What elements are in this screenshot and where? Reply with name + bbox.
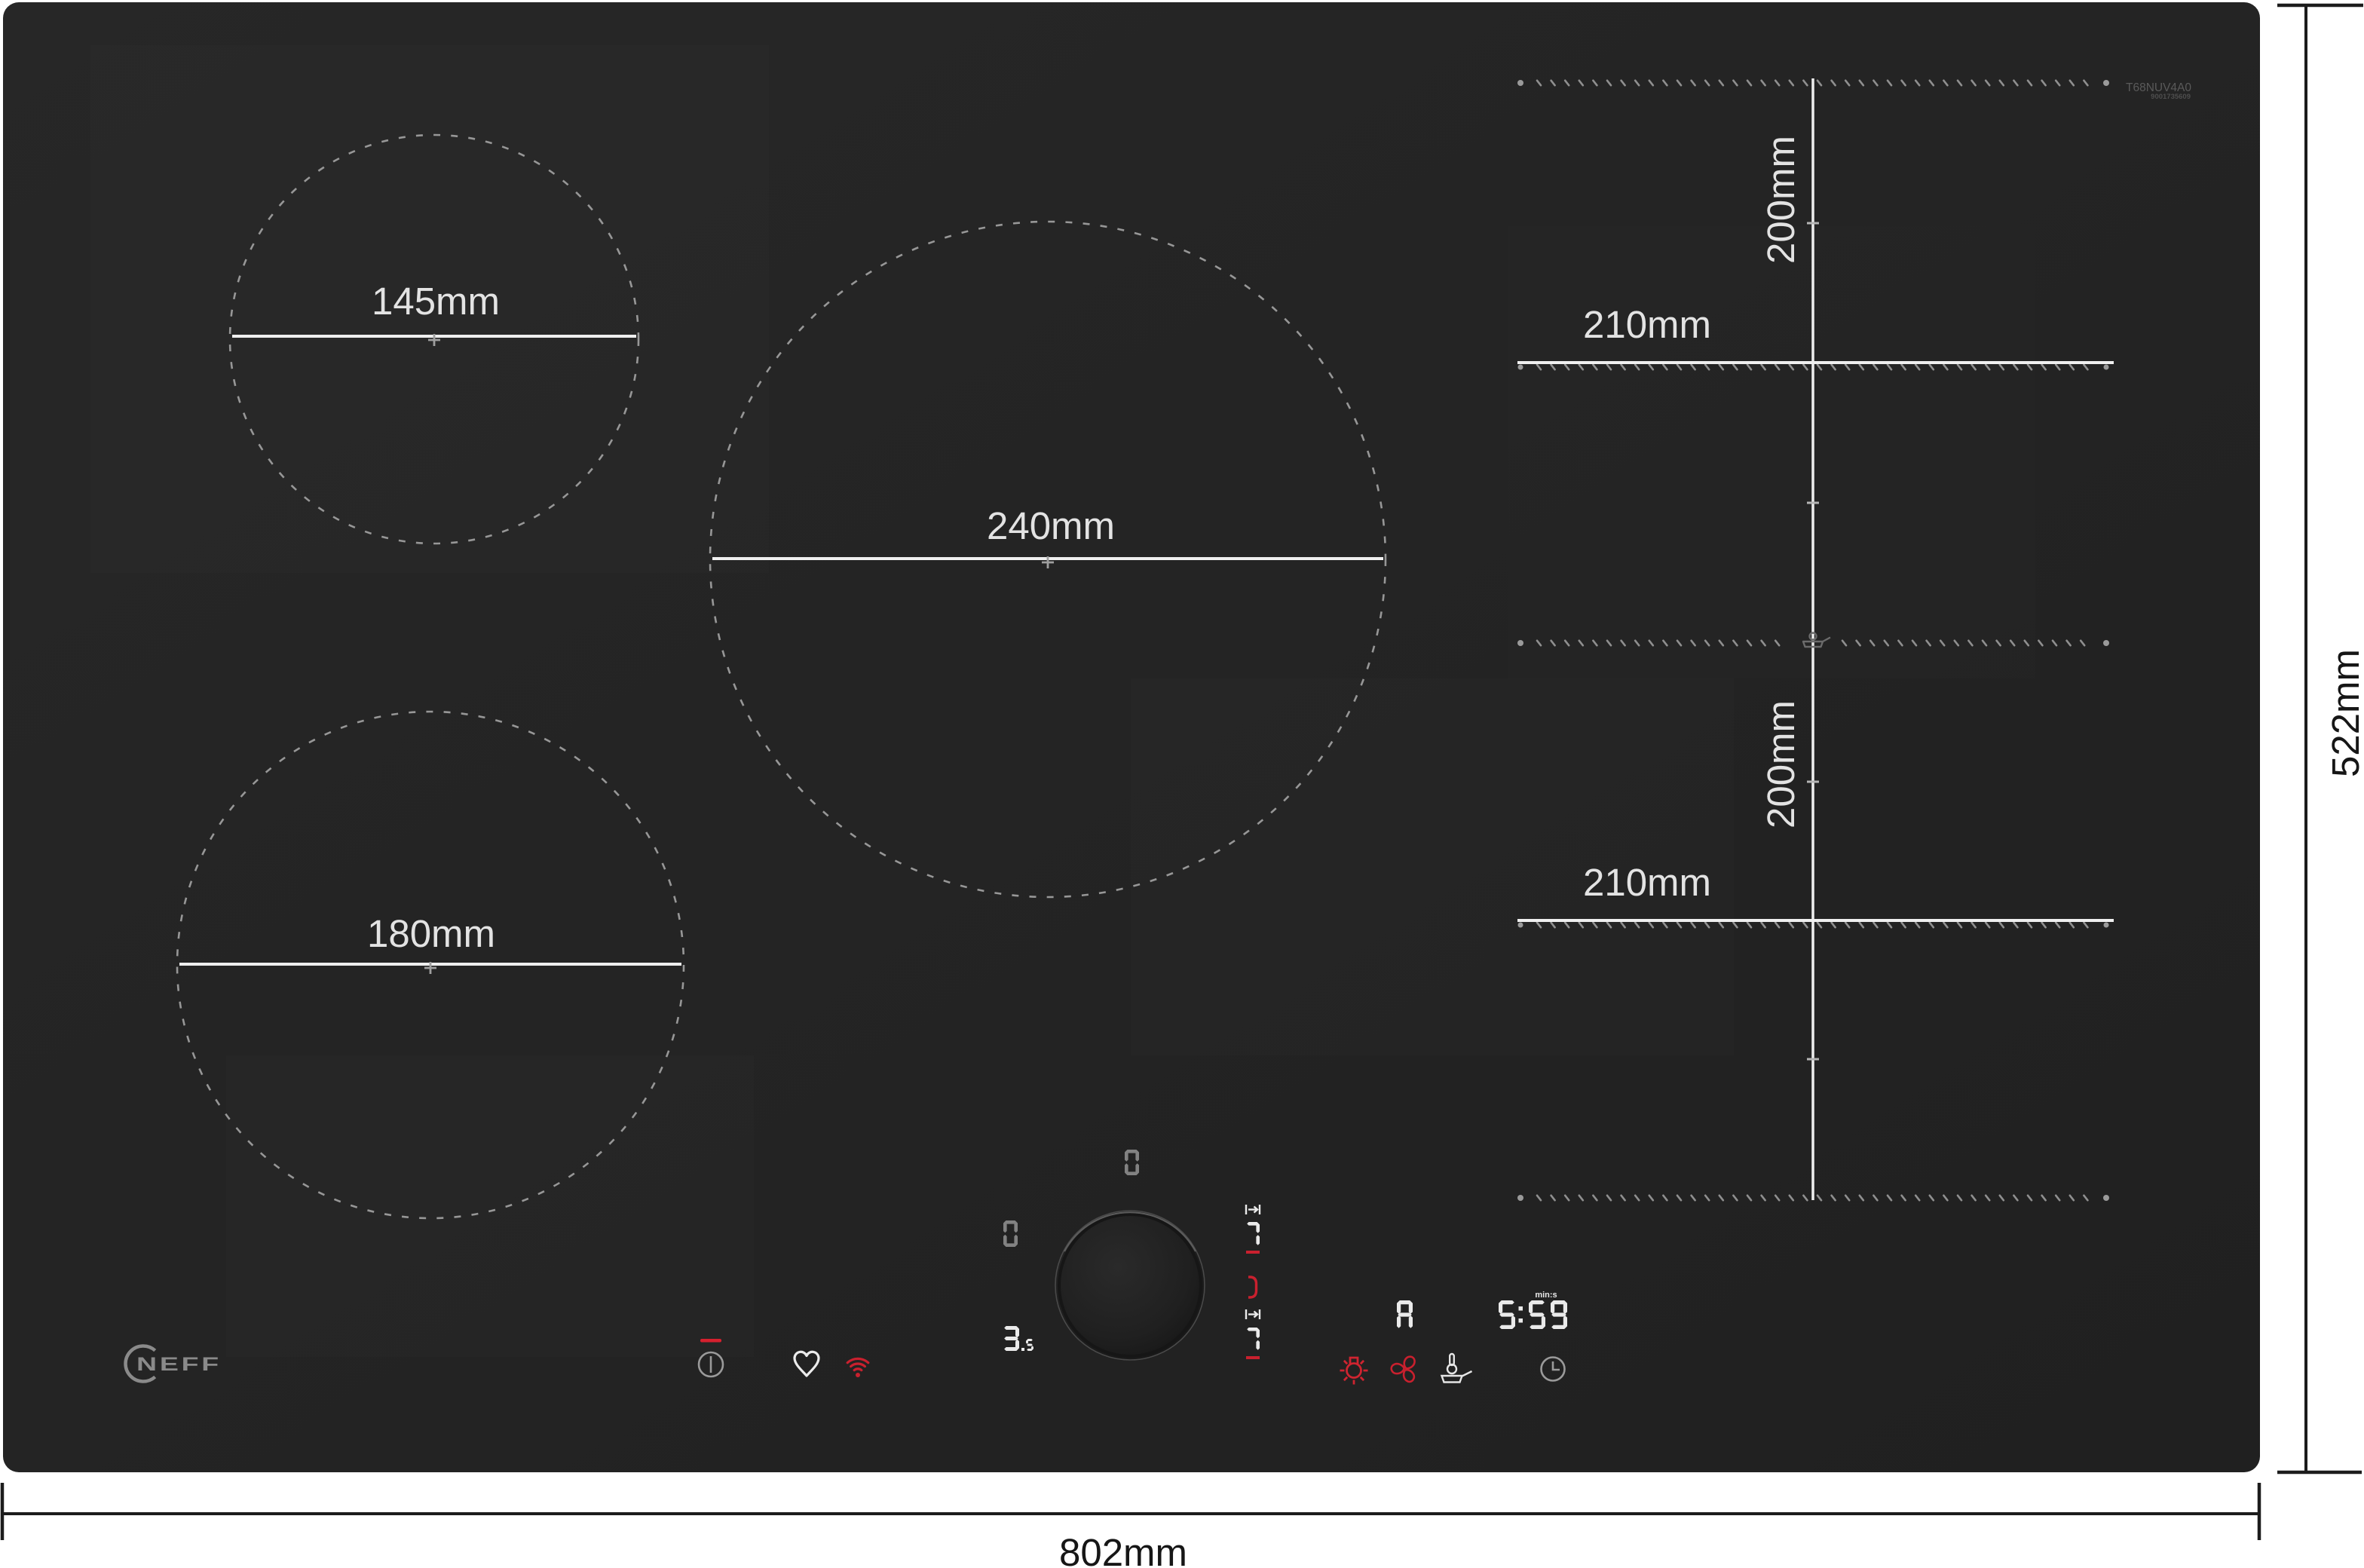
svg-text:180mm: 180mm xyxy=(367,912,495,955)
svg-text:210mm: 210mm xyxy=(1583,861,1711,904)
svg-text:NEFF: NEFF xyxy=(136,1353,222,1374)
svg-text:145mm: 145mm xyxy=(372,280,500,323)
svg-text:9001735609: 9001735609 xyxy=(2151,93,2191,101)
svg-text:802mm: 802mm xyxy=(1059,1531,1187,1568)
svg-text:210mm: 210mm xyxy=(1583,303,1711,346)
svg-text:522mm: 522mm xyxy=(2324,649,2364,777)
svg-text:240mm: 240mm xyxy=(987,504,1115,547)
svg-text:min:s: min:s xyxy=(1535,1291,1557,1300)
svg-text:200mm: 200mm xyxy=(1759,700,1802,828)
svg-text:200mm: 200mm xyxy=(1759,136,1802,264)
